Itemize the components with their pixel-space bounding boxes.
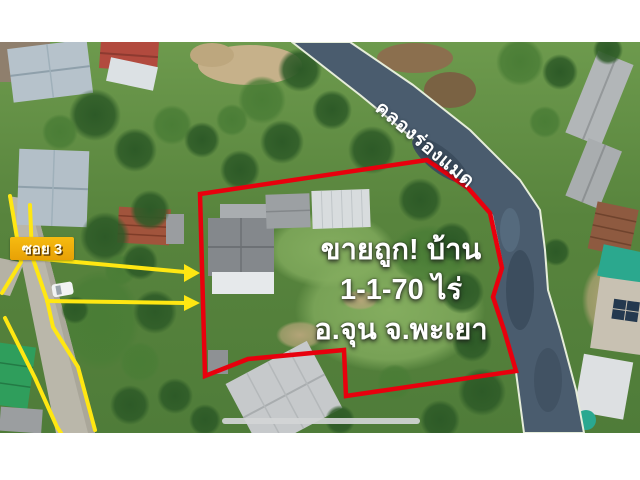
gray-bar: [222, 418, 420, 424]
listing-text-line3: อ.จุน จ.พะเยา: [295, 310, 507, 350]
pointer-line-2: [47, 301, 185, 303]
soi-label: ซอย 3: [10, 237, 74, 260]
listing-text: ขายถูก! บ้าน 1-1-70 ไร่ อ.จุน จ.พะเยา: [295, 230, 507, 350]
listing-text-line2: 1-1-70 ไร่: [295, 270, 507, 310]
aerial-photo: ซอย 3 คลองร่องแมด ขายถูก! บ้าน 1-1-70 ไร…: [0, 42, 640, 433]
listing-image: ซอย 3 คลองร่องแมด ขายถูก! บ้าน 1-1-70 ไร…: [0, 0, 640, 480]
listing-text-line1: ขายถูก! บ้าน: [295, 230, 507, 270]
